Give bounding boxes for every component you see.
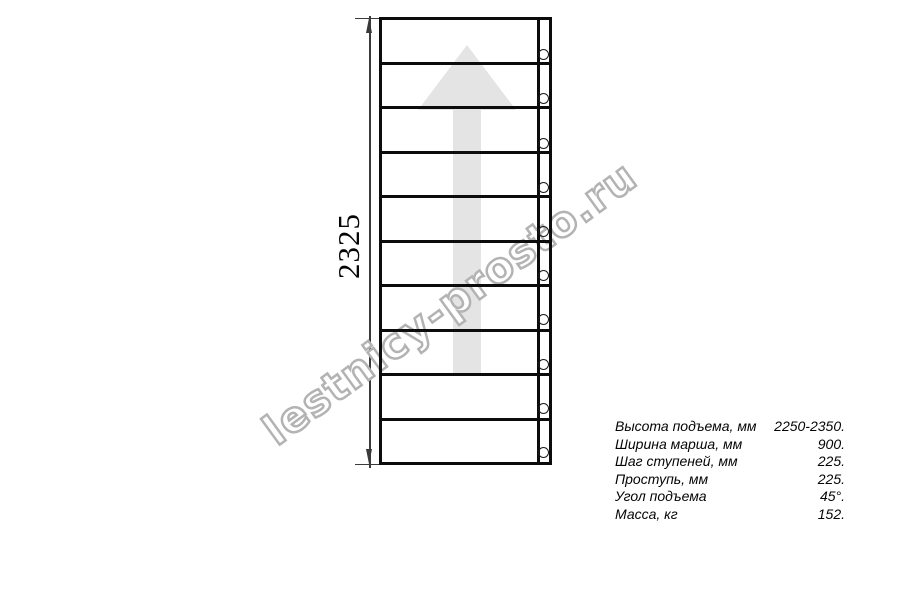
dimension-label: 2325 xyxy=(331,213,367,279)
spec-label: Масса, кг xyxy=(615,506,678,524)
stair-step xyxy=(382,198,549,243)
bolt-hole-circle xyxy=(538,447,549,458)
spec-value: 900. xyxy=(818,436,845,454)
bolt-hole-circle xyxy=(538,138,549,149)
spec-value: 225. xyxy=(818,471,845,489)
specifications-table: Высота подъема, мм2250-2350.Ширина марша… xyxy=(615,418,845,524)
spec-row: Угол подъема45°. xyxy=(615,488,845,506)
stair-step xyxy=(382,20,549,65)
stair-step xyxy=(382,332,549,377)
stair-step xyxy=(382,287,549,332)
spec-value: 45°. xyxy=(820,488,845,506)
spec-row: Масса, кг152. xyxy=(615,506,845,524)
spec-row: Проступь, мм225. xyxy=(615,471,845,489)
stair-step xyxy=(382,65,549,110)
bolt-hole-circle xyxy=(538,182,549,193)
stair-step xyxy=(382,421,549,463)
dimension-line xyxy=(369,16,371,468)
spec-row: Высота подъема, мм2250-2350. xyxy=(615,418,845,436)
spec-label: Ширина марша, мм xyxy=(615,436,742,454)
bolt-hole-circle xyxy=(538,359,549,370)
stair-steps xyxy=(382,20,549,462)
stair-step xyxy=(382,376,549,421)
stair-step xyxy=(382,243,549,288)
stair-step xyxy=(382,154,549,199)
bolt-hole-circle xyxy=(538,226,549,237)
dimension-arrowhead-up-icon xyxy=(366,18,372,33)
stair-step xyxy=(382,109,549,154)
spec-label: Высота подъема, мм xyxy=(615,418,757,436)
stair-flight-plan xyxy=(379,17,552,465)
spec-row: Шаг ступеней, мм225. xyxy=(615,453,845,471)
dimension-arrowhead-down-icon xyxy=(366,449,372,464)
spec-value: 2250-2350. xyxy=(774,418,845,436)
spec-value: 152. xyxy=(818,506,845,524)
spec-row: Ширина марша, мм900. xyxy=(615,436,845,454)
spec-label: Угол подъема xyxy=(615,488,707,506)
stair-drawing-canvas: 2325 lestnicy-prosto.ru Высота подъема, … xyxy=(0,0,900,600)
spec-value: 225. xyxy=(818,453,845,471)
spec-label: Шаг ступеней, мм xyxy=(615,453,738,471)
bolt-hole-circle xyxy=(538,403,549,414)
right-stringer-line xyxy=(537,20,540,462)
spec-label: Проступь, мм xyxy=(615,471,708,489)
